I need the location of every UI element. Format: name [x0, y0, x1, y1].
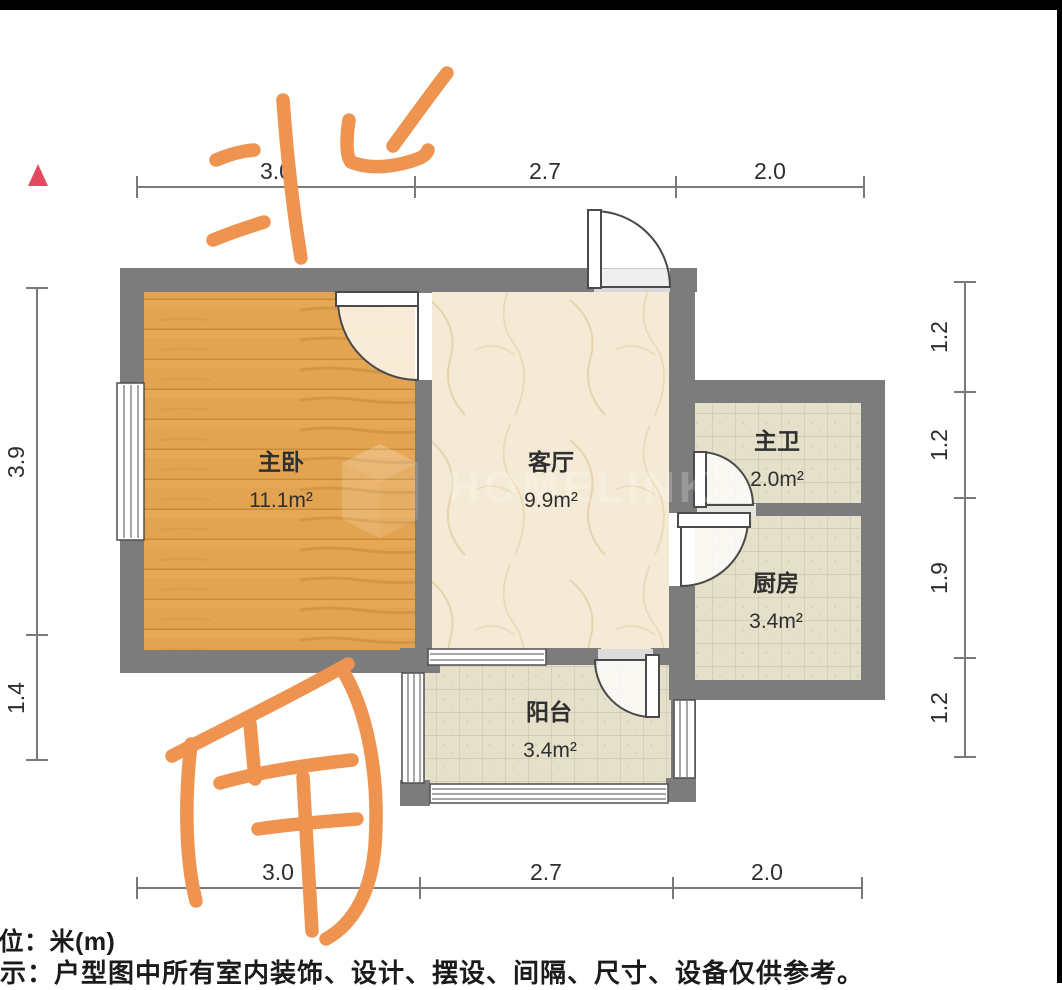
bedroom-label: 主卧 — [258, 449, 304, 475]
balcony-right-window — [674, 700, 695, 778]
watermark-text: HOMELINK — [448, 463, 715, 512]
entrance-door — [588, 210, 670, 288]
floorplan-canvas: HOMELINK 主卧 11.1m² 客厅 9.9m² 主卫 2.0m² 厨房 … — [0, 0, 1062, 983]
watermark-cube-logo — [342, 444, 418, 538]
dim-left-2: 1.4 — [3, 682, 29, 714]
dimension-top: 3.0 2.7 2.0 — [137, 158, 864, 198]
right-black-bar — [1057, 0, 1062, 983]
dim-right-3: 1.9 — [926, 562, 952, 594]
kitchen-label: 厨房 — [753, 570, 799, 596]
disclaimer-note: 提示：户型图中所有室内装饰、设计、摆设、间隔、尺寸、设备仅供参考。 — [0, 953, 864, 990]
wall-segment — [669, 680, 885, 700]
dimension-right: 1.2 1.2 1.9 1.2 — [926, 282, 976, 757]
bathroom-area: 2.0m² — [750, 468, 804, 491]
balcony-label: 阳台 — [526, 699, 572, 725]
dim-top-2: 2.7 — [529, 158, 561, 184]
balcony-left-window — [402, 673, 424, 783]
wall-segment — [120, 650, 440, 673]
north-sketch-annotation — [213, 73, 447, 258]
living-balcony-window — [428, 649, 546, 665]
bedroom-area: 11.1m² — [249, 489, 313, 512]
wall-segment — [694, 380, 885, 403]
living-room-area: 9.9m² — [524, 489, 578, 512]
wall-segment — [546, 648, 601, 665]
red-triangle-marker — [28, 164, 48, 186]
dimension-bottom: 3.0 2.7 2.0 — [137, 859, 862, 899]
bedroom-window — [117, 383, 144, 540]
kitchen-area: 3.4m² — [749, 610, 803, 633]
balcony-bottom-window — [430, 784, 668, 803]
wall-segment — [861, 380, 885, 700]
balcony-area: 3.4m² — [523, 739, 577, 762]
south-sketch-annotation — [172, 664, 376, 939]
dim-bottom-1: 3.0 — [262, 859, 294, 885]
dim-right-2: 1.2 — [926, 429, 952, 461]
dim-top-3: 2.0 — [754, 158, 786, 184]
dim-bottom-3: 2.0 — [751, 859, 783, 885]
dim-right-4: 1.2 — [926, 692, 952, 724]
wall-segment — [400, 780, 430, 806]
dim-right-1: 1.2 — [926, 321, 952, 353]
living-room-label: 客厅 — [528, 449, 574, 475]
wall-segment — [400, 648, 430, 673]
top-black-bar — [0, 0, 1062, 10]
dim-bottom-2: 2.7 — [530, 859, 562, 885]
bathroom-label: 主卫 — [754, 428, 800, 454]
dimension-left: 3.9 1.4 — [3, 288, 48, 760]
dim-left-1: 3.9 — [3, 446, 29, 478]
